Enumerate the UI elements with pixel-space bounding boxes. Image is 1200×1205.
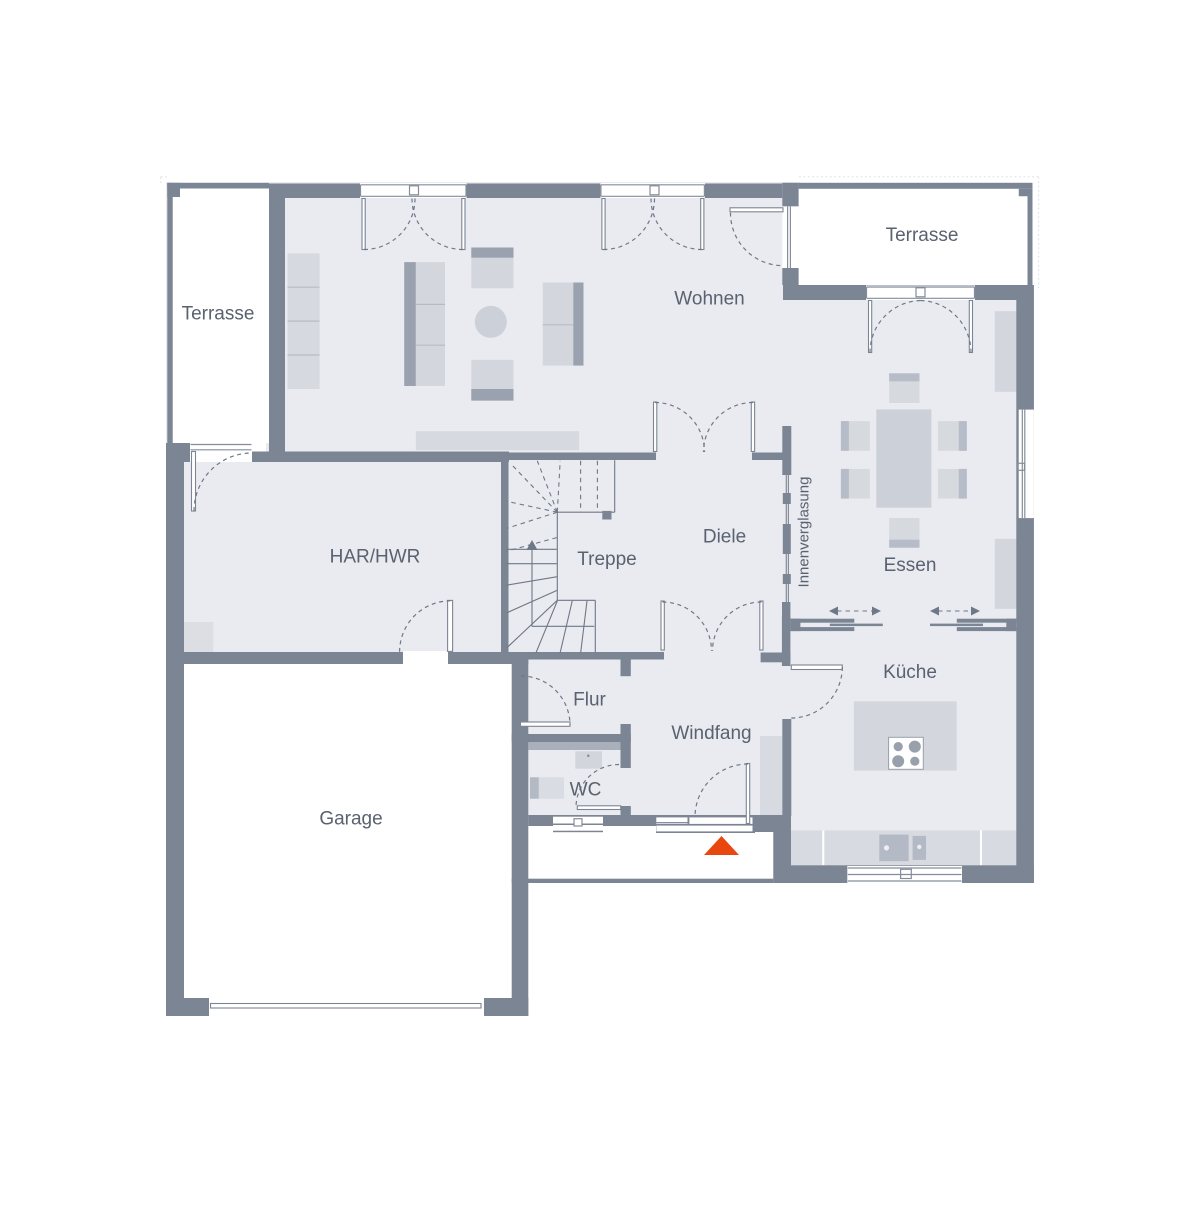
- svg-text:Terrasse: Terrasse: [182, 304, 255, 325]
- svg-text:HAR/HWR: HAR/HWR: [330, 547, 421, 568]
- svg-text:Innenverglasung: Innenverglasung: [796, 477, 813, 588]
- svg-text:Wohnen: Wohnen: [674, 289, 744, 310]
- svg-text:WC: WC: [570, 780, 602, 801]
- svg-text:Treppe: Treppe: [577, 549, 637, 570]
- svg-text:Garage: Garage: [319, 809, 382, 830]
- svg-text:Diele: Diele: [703, 527, 746, 548]
- svg-text:Windfang: Windfang: [671, 723, 751, 744]
- svg-text:Küche: Küche: [883, 662, 937, 683]
- svg-text:Essen: Essen: [884, 555, 937, 576]
- svg-text:Flur: Flur: [573, 690, 606, 711]
- svg-text:Terrasse: Terrasse: [886, 225, 959, 246]
